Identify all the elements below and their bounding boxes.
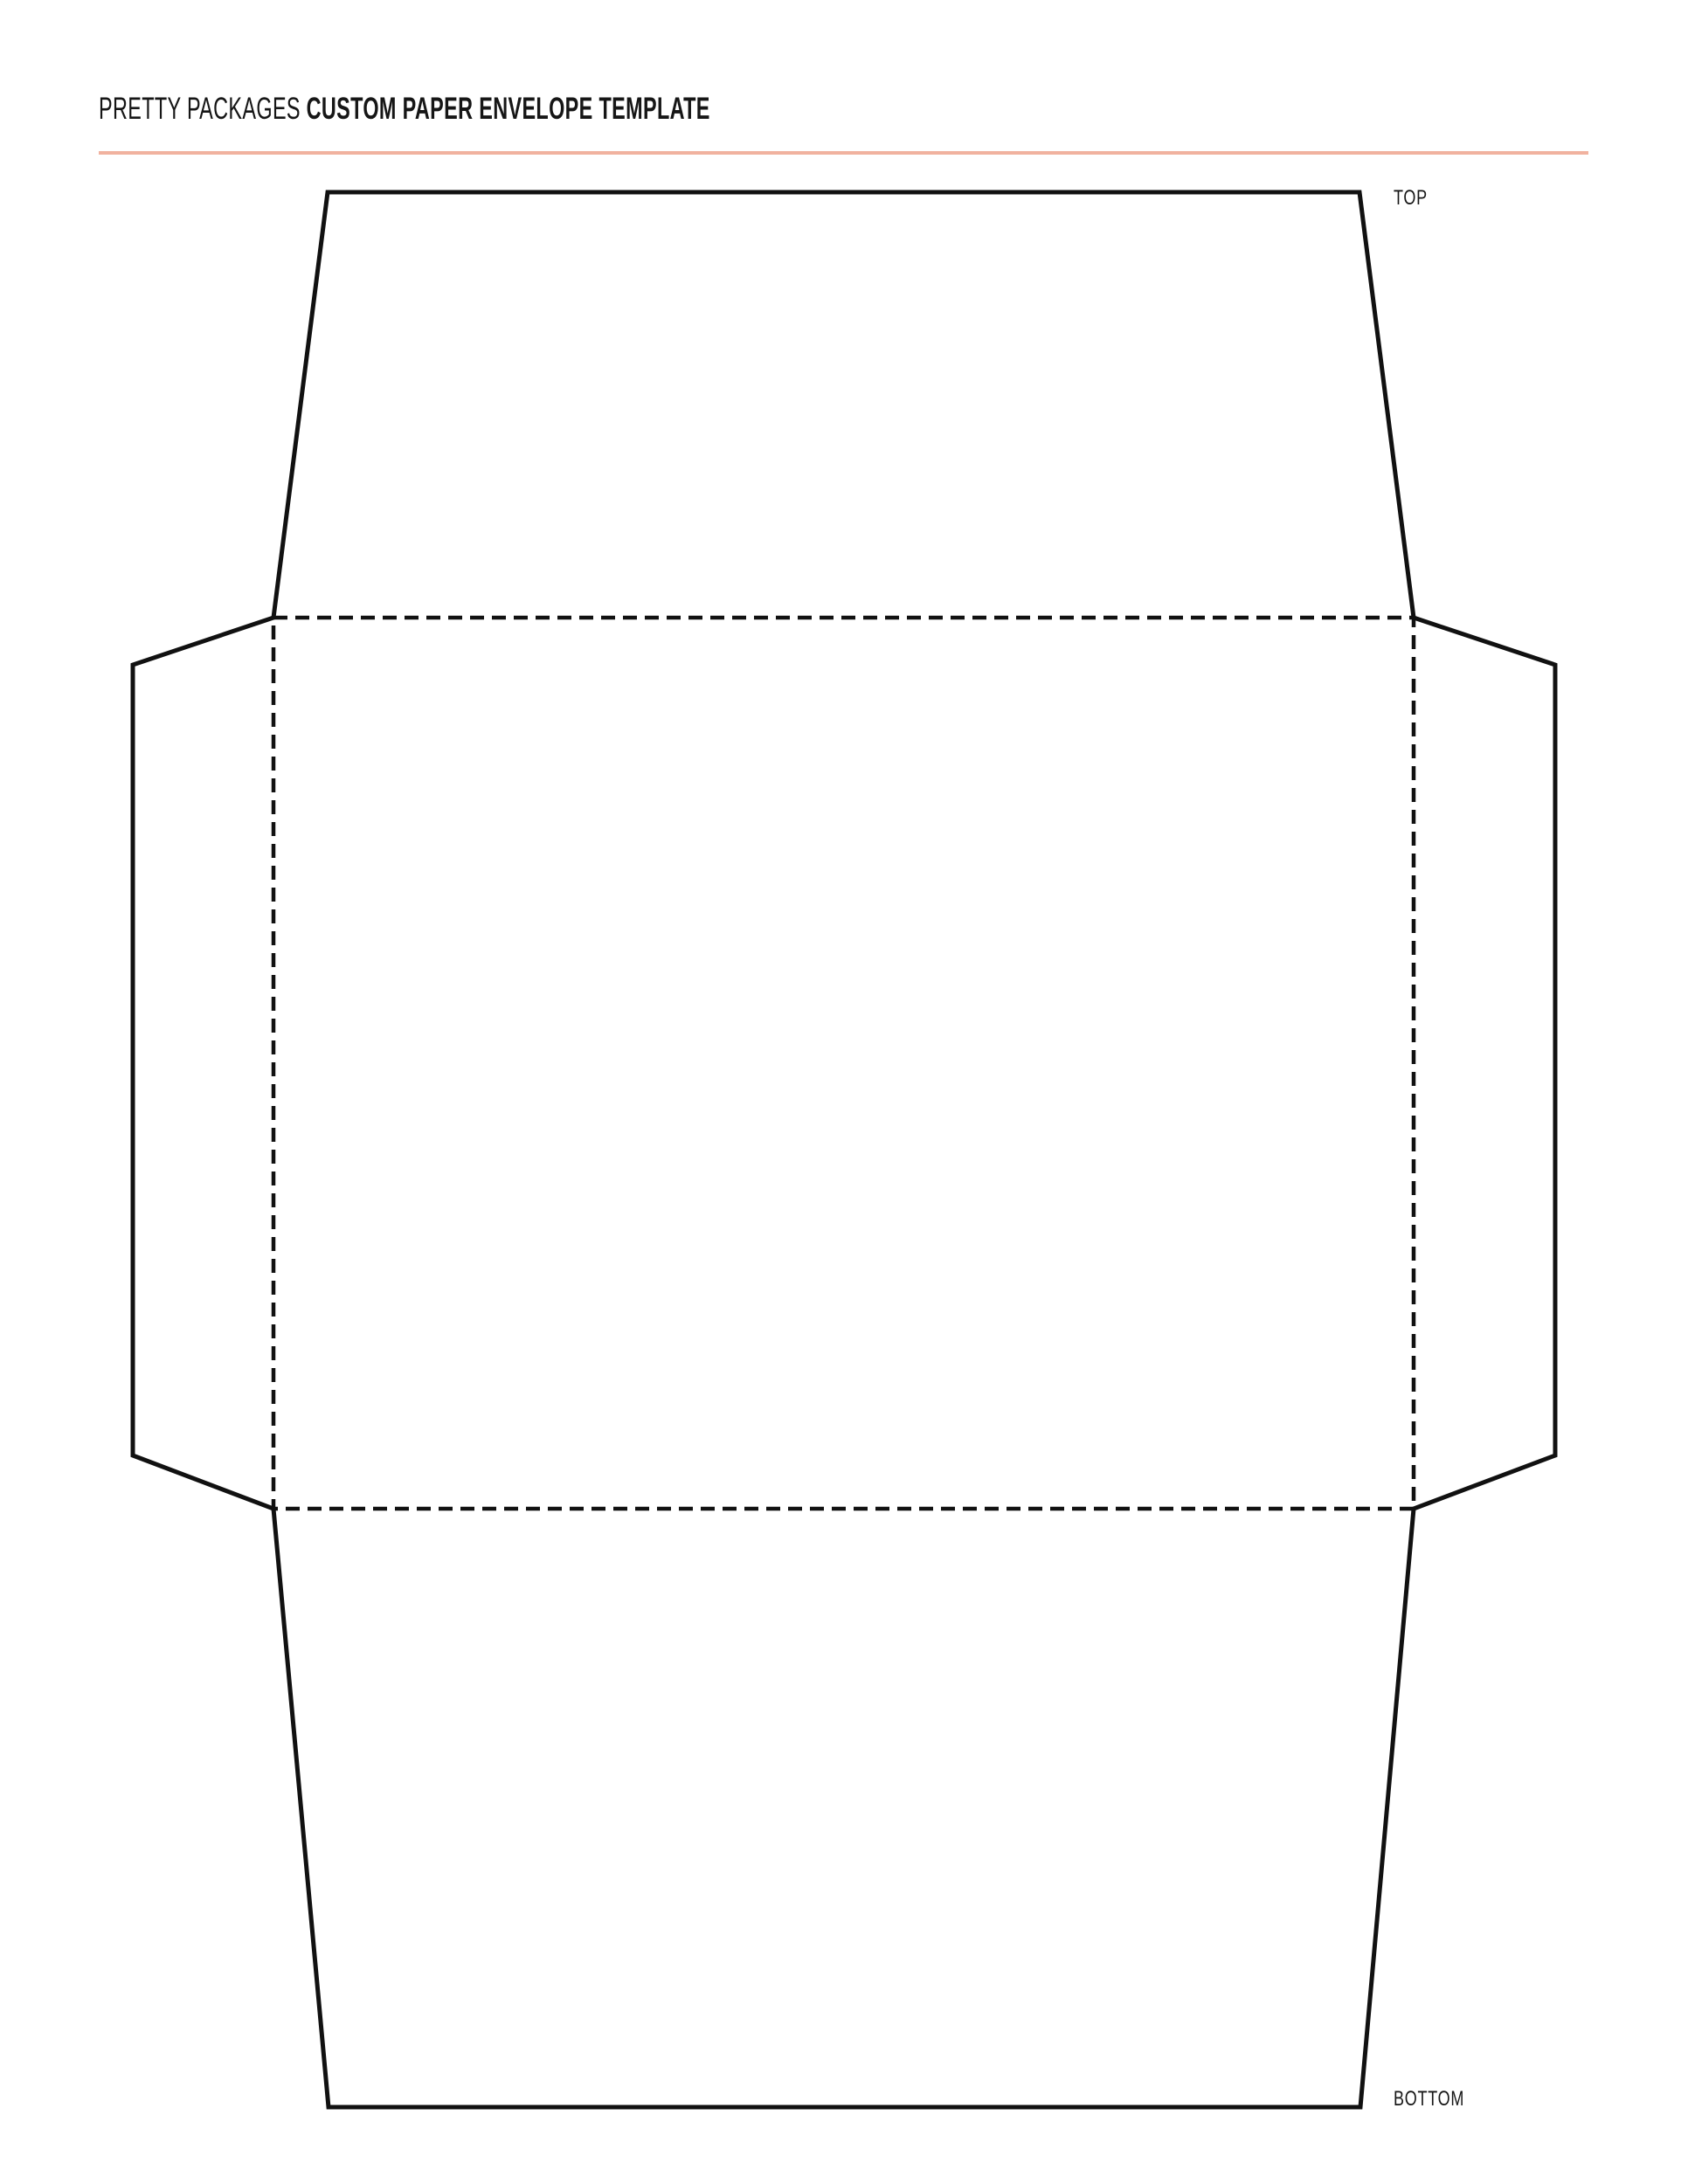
envelope-template-diagram <box>0 0 1688 2184</box>
printable-envelope-template-page: PRETTY PACKAGESCUSTOM PAPER ENVELOPE TEM… <box>0 0 1688 2184</box>
bottom-flap-label: BOTTOM <box>1394 2089 1464 2110</box>
envelope-fold-lines <box>273 618 1414 1509</box>
top-flap-label: TOP <box>1394 188 1428 209</box>
envelope-cut-outline <box>133 192 1555 2107</box>
header-accent-rule <box>99 151 1588 155</box>
